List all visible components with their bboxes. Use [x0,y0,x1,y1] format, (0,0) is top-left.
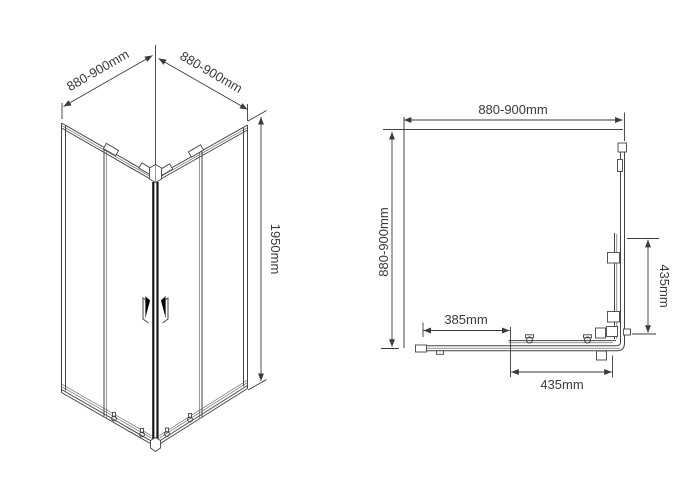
door-roller [526,335,592,343]
corner-post [150,165,162,452]
shower-enclosure-drawing: 880-900mm 880-900mm 1950mm [0,0,700,495]
iso-dim-height-label: 1950mm [268,224,283,275]
right-door-handle [161,297,168,324]
top-hanger-bracket [159,145,203,175]
plan-right-face: 435mm [608,143,673,351]
plan-view: 880-900mm 880-900mm 435mm [376,102,672,392]
iso-left-face [62,123,156,447]
bottom-roller [165,414,193,437]
iso-dimension-lines: 880-900mm 880-900mm 1950mm [62,45,283,390]
isometric-view: 880-900mm 880-900mm 1950mm [62,45,284,452]
plan-dim-fixed-panel-label: 385mm [444,312,487,327]
plan-dim-depth-label: 880-900mm [376,207,391,276]
iso-right-face [156,125,248,447]
plan-dim-width-label: 880-900mm [478,102,547,117]
technical-drawing-canvas: 880-900mm 880-900mm 1950mm [0,0,700,495]
plan-bottom-face: 385mm 435mm [416,312,631,392]
plan-dim-door-right-label: 435mm [657,264,672,307]
corner-brackets [596,327,631,361]
left-door-handle [143,297,150,324]
plan-dimension-lines: 880-900mm 880-900mm [376,102,625,349]
plan-dim-door-bottom-label: 435mm [540,377,583,392]
top-hanger-bracket [103,143,152,174]
plan-outline [383,117,623,348]
